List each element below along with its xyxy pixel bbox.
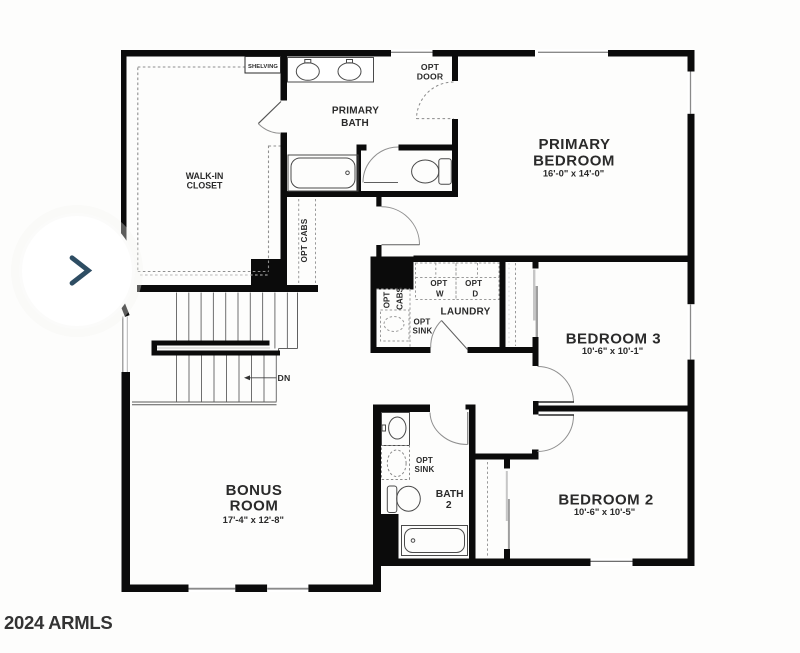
svg-text:LAUNDRY: LAUNDRY xyxy=(441,306,491,317)
svg-text:OPT: OPT xyxy=(413,318,430,327)
svg-text:10'-6" x 10'-5": 10'-6" x 10'-5" xyxy=(574,506,635,517)
svg-text:16'-0" x 14'-0": 16'-0" x 14'-0" xyxy=(543,168,604,179)
svg-text:OPT: OPT xyxy=(421,62,440,72)
svg-text:BATH: BATH xyxy=(436,489,464,500)
svg-text:17'-4" x 12'-8": 17'-4" x 12'-8" xyxy=(223,514,284,525)
svg-text:OPT: OPT xyxy=(430,279,447,288)
svg-text:CLOSET: CLOSET xyxy=(187,181,223,191)
svg-text:DOOR: DOOR xyxy=(417,72,444,82)
svg-text:PRIMARY: PRIMARY xyxy=(332,106,379,117)
svg-text:W: W xyxy=(436,290,444,299)
svg-text:OPT: OPT xyxy=(465,279,482,288)
svg-text:OPT: OPT xyxy=(416,456,433,465)
svg-text:DN: DN xyxy=(278,373,291,383)
svg-text:SINK: SINK xyxy=(413,327,433,336)
svg-text:OPT CABS: OPT CABS xyxy=(300,218,309,262)
svg-text:BATH: BATH xyxy=(341,118,369,129)
svg-text:CABS: CABS xyxy=(396,287,405,310)
svg-text:BONUS: BONUS xyxy=(226,482,283,499)
svg-text:2: 2 xyxy=(446,500,452,511)
svg-text:PRIMARY: PRIMARY xyxy=(538,136,610,153)
svg-text:ROOM: ROOM xyxy=(230,498,279,515)
svg-text:D: D xyxy=(472,290,478,299)
svg-text:2024 ARMLS: 2024 ARMLS xyxy=(4,612,112,633)
svg-text:SINK: SINK xyxy=(415,465,435,474)
svg-text:SHELVING: SHELVING xyxy=(248,64,278,70)
svg-text:10'-6" x 10'-1": 10'-6" x 10'-1" xyxy=(582,345,643,356)
svg-text:WALK-IN: WALK-IN xyxy=(186,171,224,181)
svg-text:OPT: OPT xyxy=(383,292,392,309)
